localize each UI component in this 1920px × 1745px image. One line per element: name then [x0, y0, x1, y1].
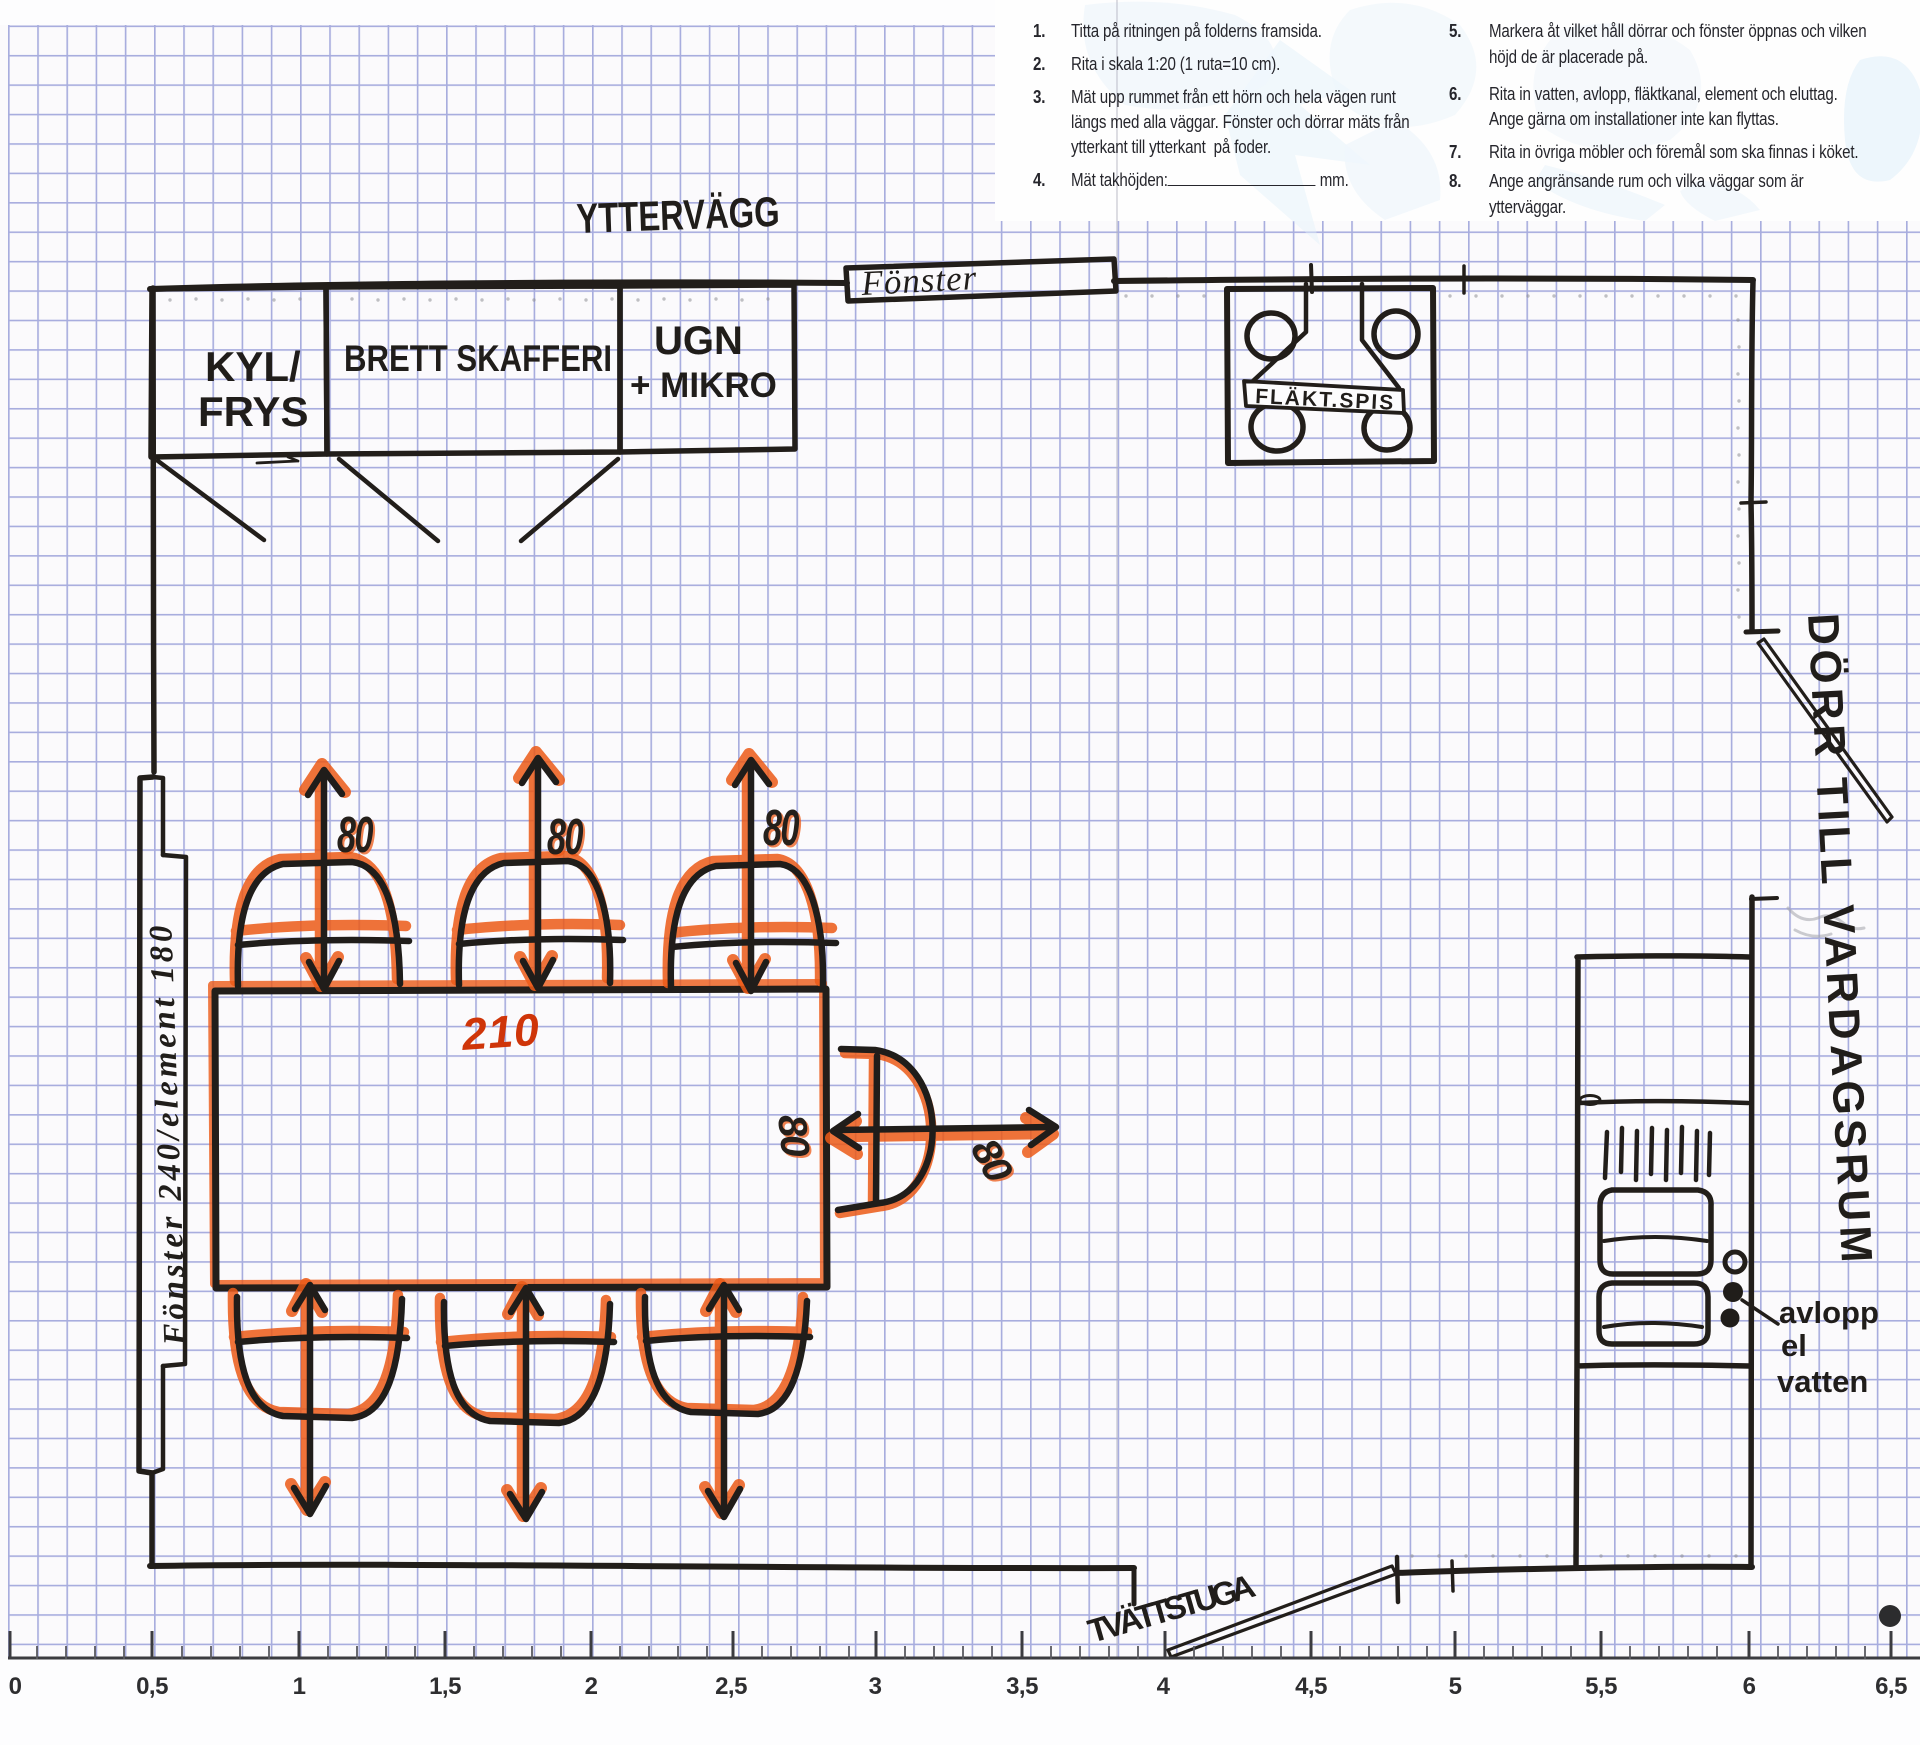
svg-text:Fönster: Fönster [859, 258, 978, 303]
svg-text:KYL/: KYL/ [205, 343, 301, 390]
svg-text:80: 80 [547, 809, 583, 865]
svg-text:80: 80 [337, 807, 373, 863]
svg-text:BRETT SKAFFERI: BRETT SKAFFERI [344, 338, 612, 379]
svg-text:80: 80 [763, 800, 799, 856]
svg-text:210: 210 [459, 1004, 541, 1060]
svg-text:UGN: UGN [654, 319, 743, 363]
svg-text:avlopp: avlopp [1779, 1295, 1879, 1330]
svg-text:80: 80 [769, 1112, 817, 1159]
svg-text:vatten: vatten [1777, 1364, 1868, 1399]
svg-text:YTTERVÄGG: YTTERVÄGG [576, 188, 781, 242]
svg-text:el: el [1781, 1328, 1807, 1363]
svg-text:FRYS: FRYS [198, 388, 308, 435]
svg-text:+ MIKRO: + MIKRO [630, 366, 777, 405]
